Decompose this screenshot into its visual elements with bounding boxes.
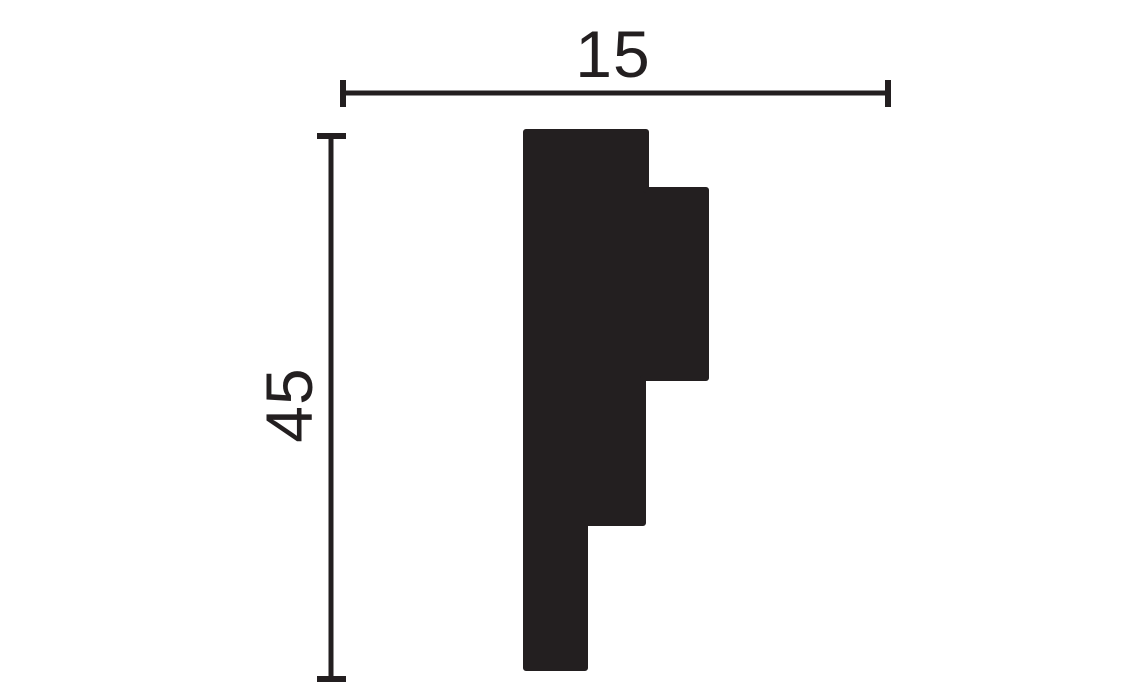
width-dimension-label: 15 bbox=[575, 21, 650, 87]
diagram-canvas bbox=[0, 0, 1128, 684]
height-dimension-label: 45 bbox=[256, 367, 322, 442]
moulding-profile-shape bbox=[526, 132, 706, 668]
profile-dimension-diagram: 15 45 bbox=[0, 0, 1128, 684]
